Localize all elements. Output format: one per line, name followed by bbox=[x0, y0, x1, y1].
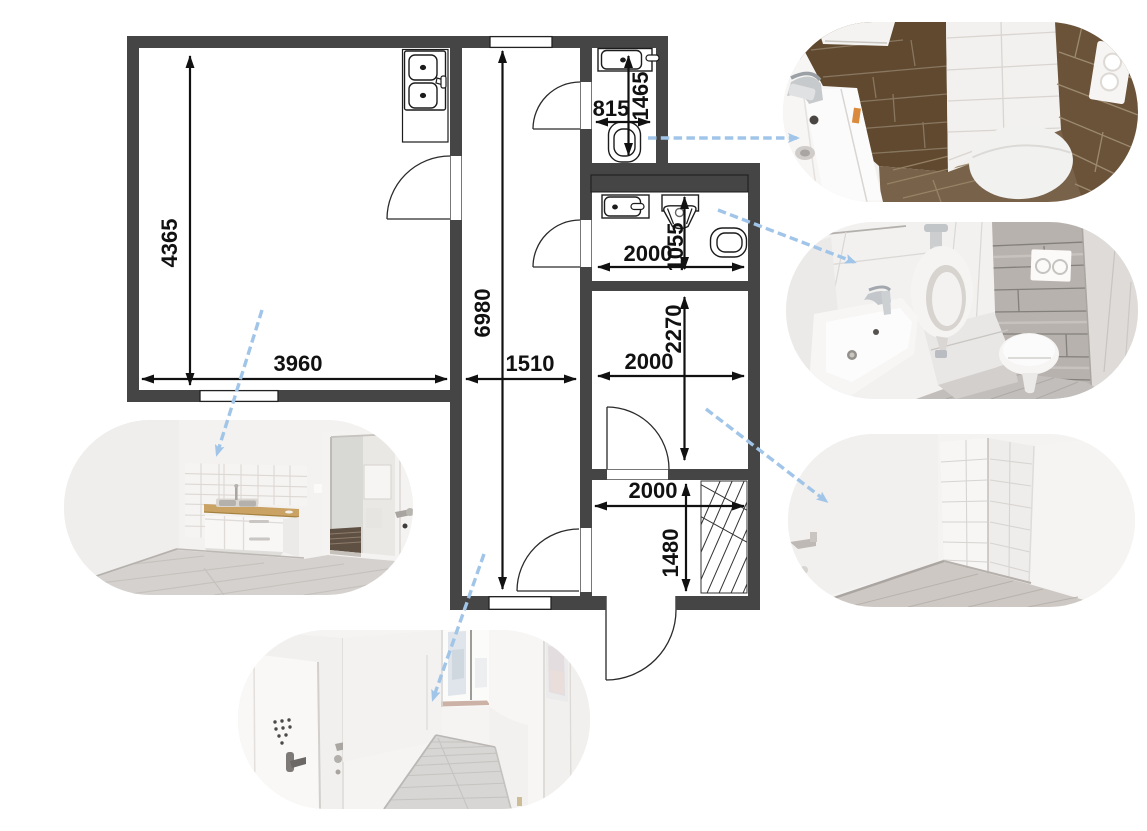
svg-text:6980: 6980 bbox=[470, 289, 495, 338]
svg-text:2270: 2270 bbox=[661, 305, 686, 354]
svg-text:1055: 1055 bbox=[663, 223, 688, 272]
svg-text:1510: 1510 bbox=[506, 351, 555, 376]
svg-text:2000: 2000 bbox=[629, 478, 678, 503]
svg-text:2000: 2000 bbox=[625, 349, 674, 374]
svg-text:1480: 1480 bbox=[658, 529, 683, 578]
svg-text:1465: 1465 bbox=[628, 72, 653, 121]
svg-text:815: 815 bbox=[593, 96, 630, 121]
svg-text:4365: 4365 bbox=[157, 219, 182, 268]
svg-text:3960: 3960 bbox=[274, 351, 323, 376]
